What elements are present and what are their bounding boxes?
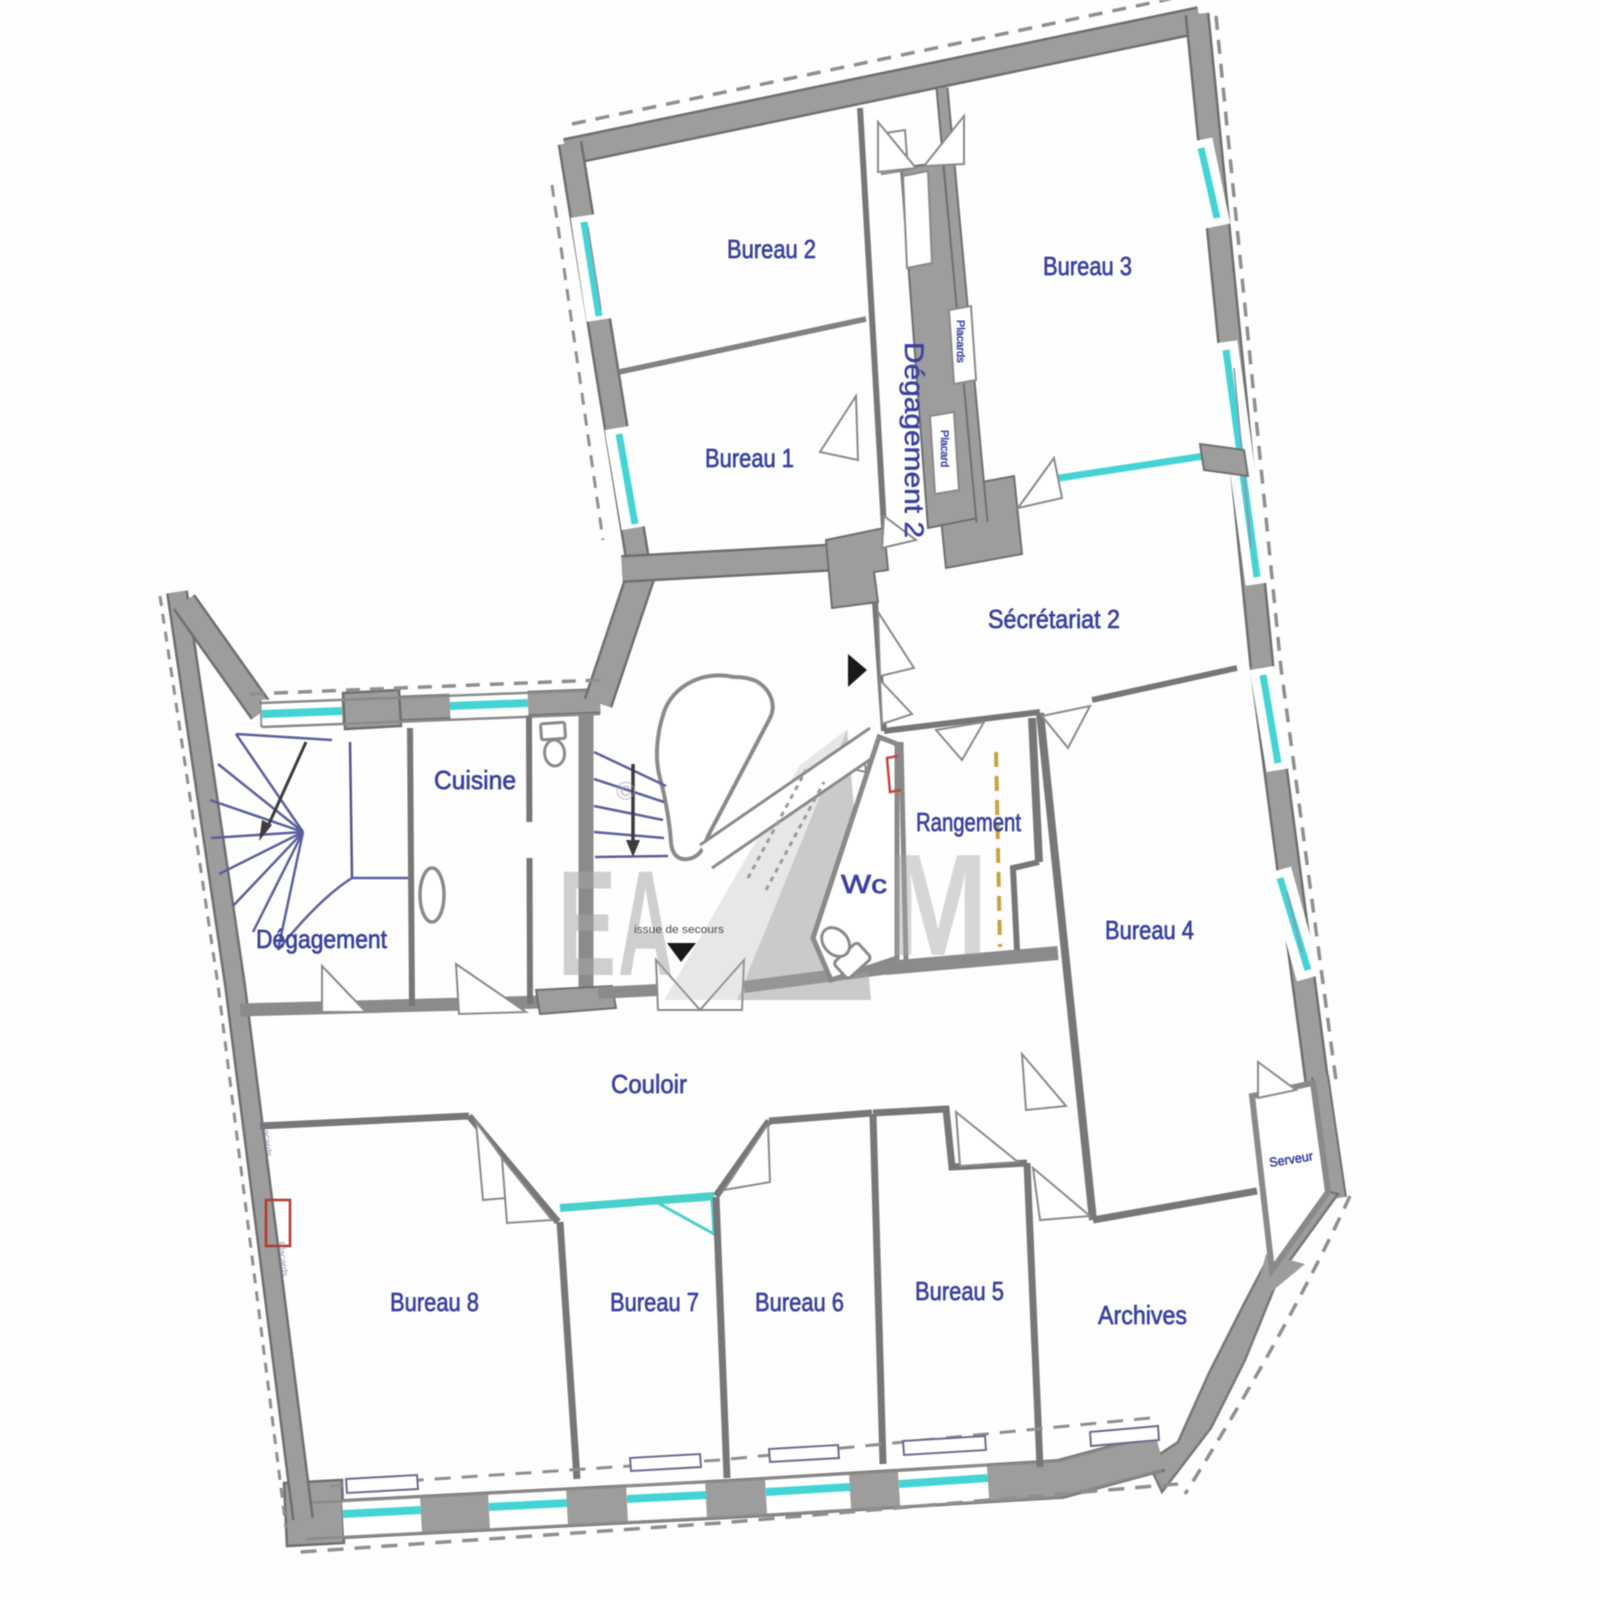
svg-text:Dégagement: Dégagement	[256, 924, 388, 954]
svg-text:Bureau 2: Bureau 2	[727, 234, 816, 264]
svg-text:Bureau 4: Bureau 4	[1105, 915, 1194, 945]
svg-text:©: ©	[616, 776, 635, 806]
svg-text:Bureau 3: Bureau 3	[1043, 251, 1132, 281]
svg-text:issue de secours: issue de secours	[634, 924, 725, 936]
svg-text:Bureau 5: Bureau 5	[915, 1276, 1004, 1306]
svg-text:Rangement: Rangement	[916, 807, 1022, 837]
svg-text:Sécrétariat 2: Sécrétariat 2	[988, 604, 1120, 634]
svg-text:A: A	[618, 839, 673, 1007]
svg-text:Cuisine: Cuisine	[434, 765, 516, 795]
svg-text:Dégagement 2: Dégagement 2	[899, 342, 929, 538]
svg-text:Placard: Placard	[938, 430, 950, 467]
svg-text:Bureau 7: Bureau 7	[610, 1287, 699, 1317]
svg-text:Bureau 8: Bureau 8	[390, 1287, 479, 1317]
svg-text:M: M	[888, 824, 988, 986]
svg-text:Archives: Archives	[1098, 1300, 1187, 1330]
svg-text:Couloir: Couloir	[611, 1069, 687, 1099]
svg-text:Wc: Wc	[841, 869, 887, 899]
svg-text:Bureau 1: Bureau 1	[705, 443, 794, 473]
svg-text:Bureau 6: Bureau 6	[755, 1287, 844, 1317]
svg-text:Placards: Placards	[954, 320, 966, 363]
svg-text:E: E	[558, 839, 616, 1007]
